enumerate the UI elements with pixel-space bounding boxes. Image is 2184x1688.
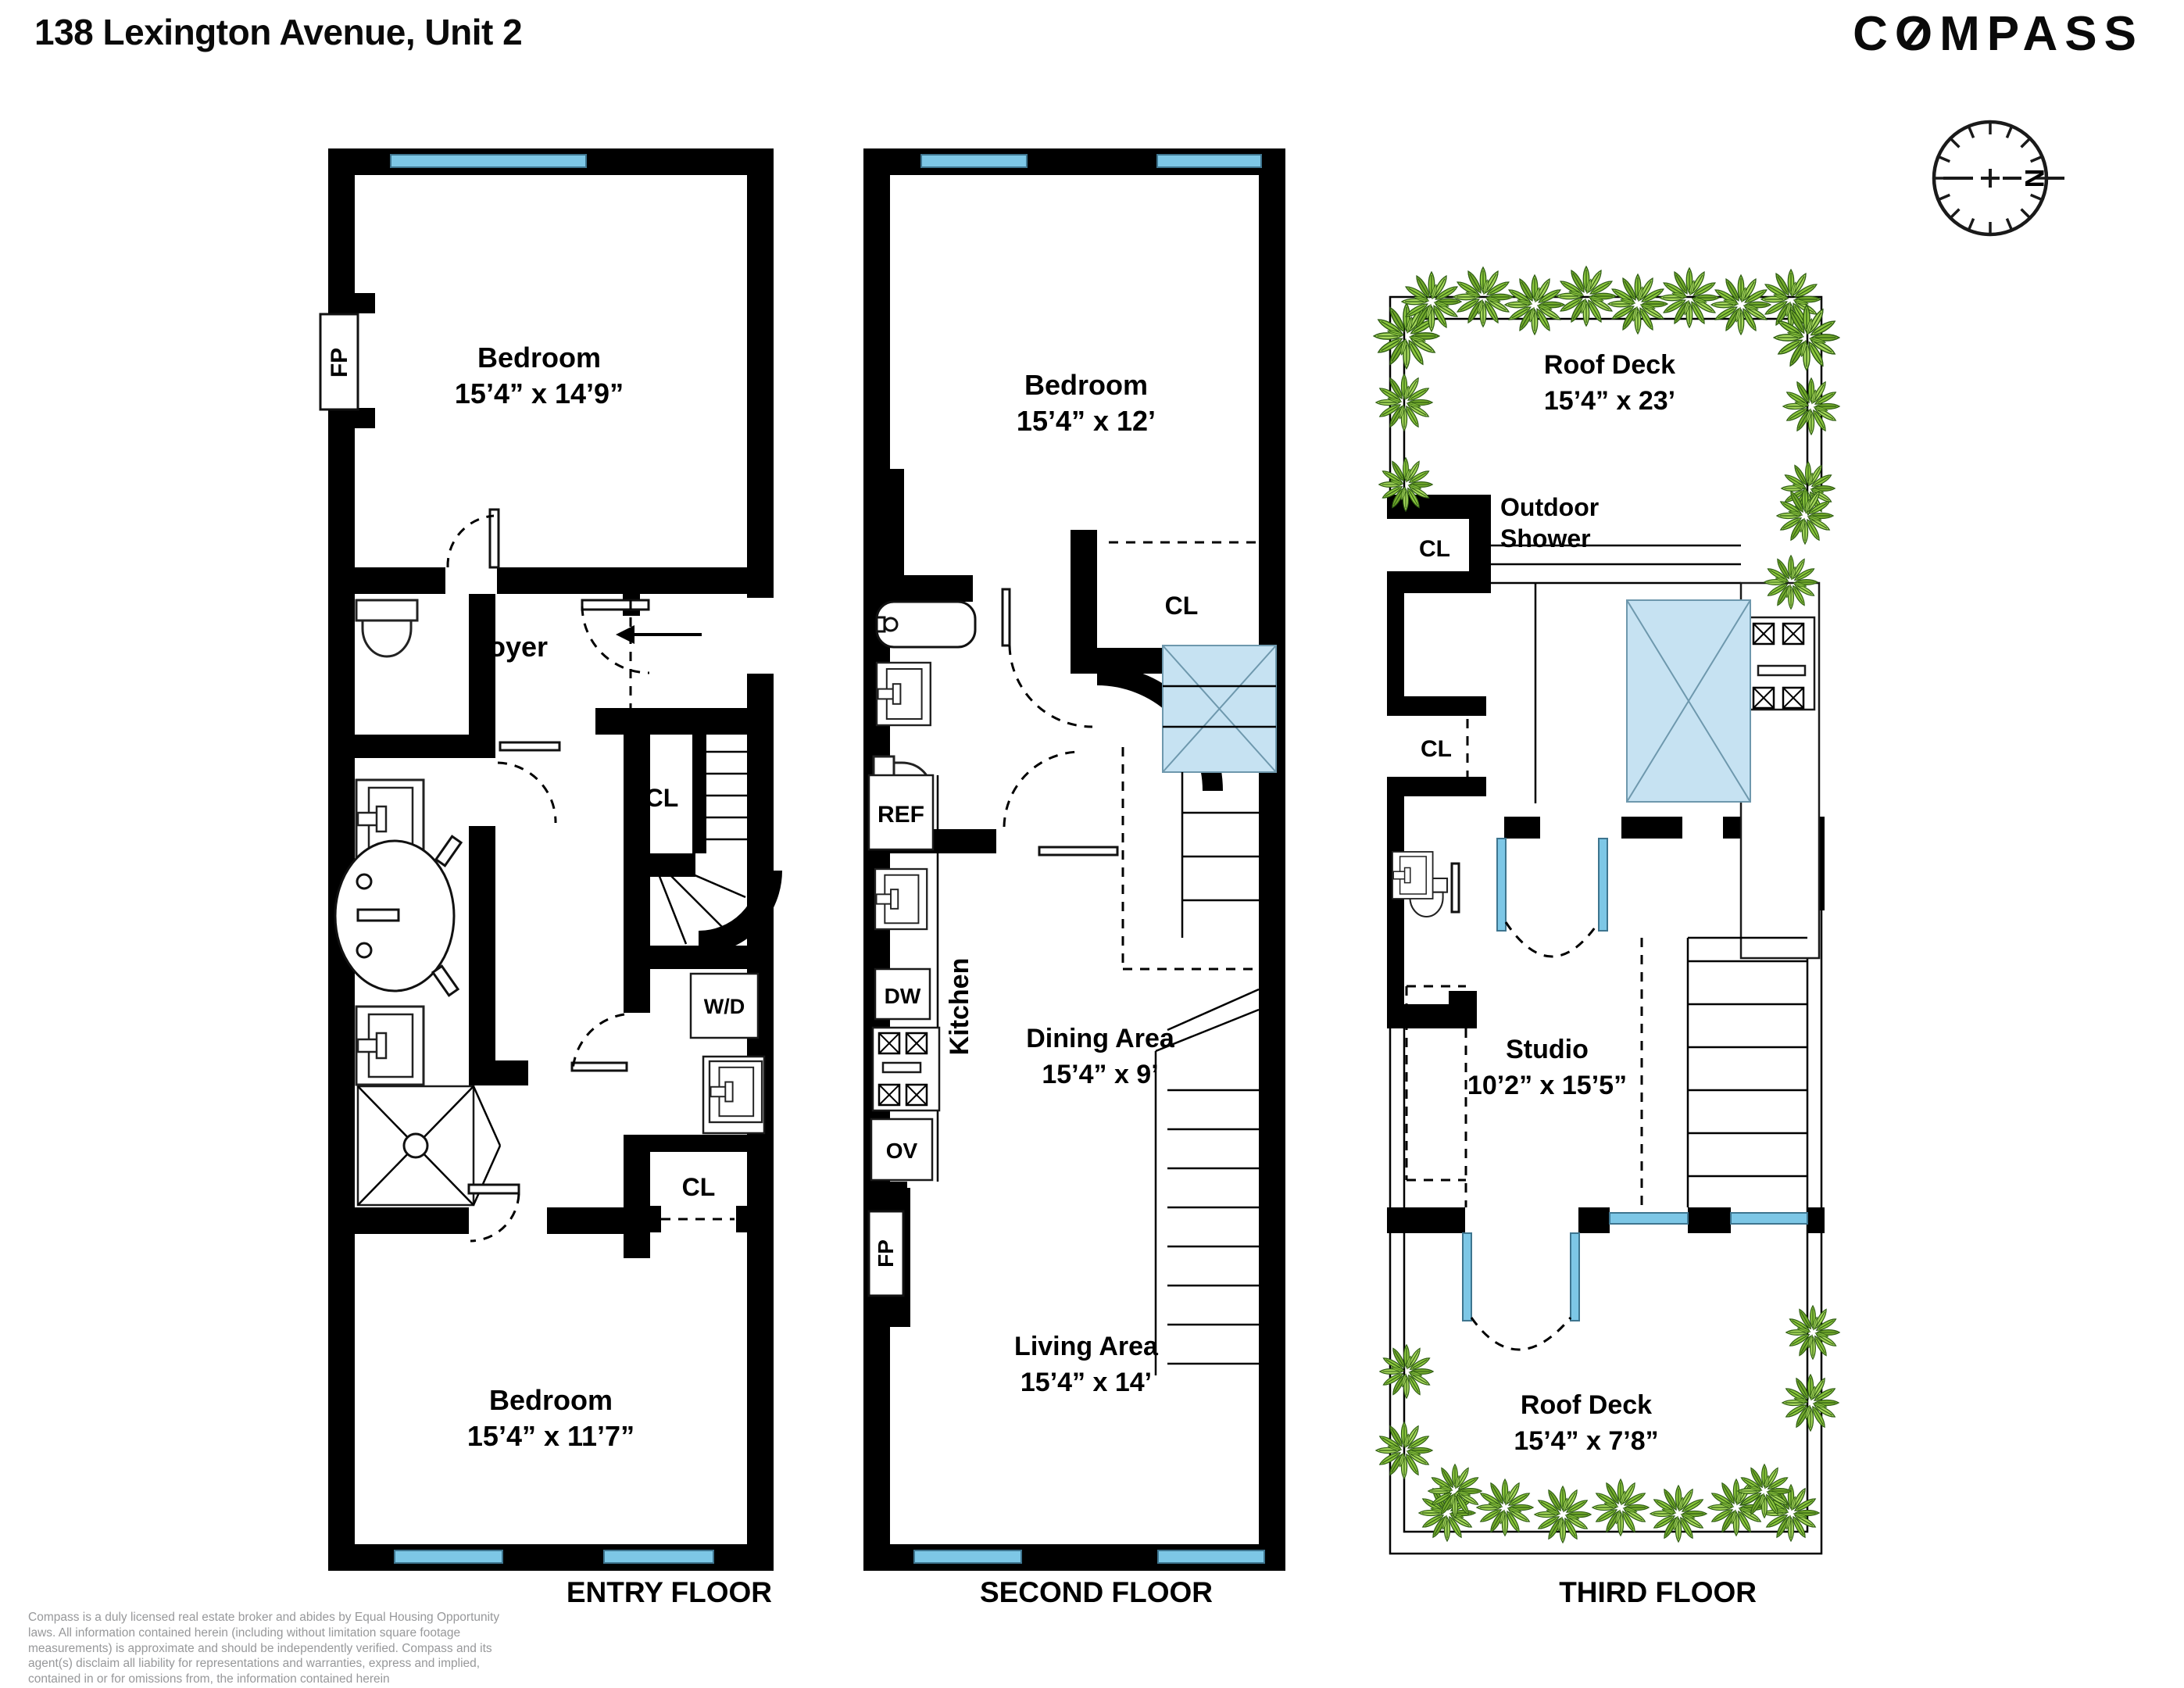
third-roofdeck-bottom-label: Roof Deck — [1521, 1390, 1652, 1420]
second-dining-label: Dining Area — [1026, 1024, 1175, 1053]
third-roofdeck-bottom-dims: 15’4” x 7’8” — [1514, 1426, 1658, 1456]
compass-north-label: N — [2019, 169, 2049, 188]
entry-toilet-icon — [356, 600, 417, 656]
second-living-label: Living Area — [1014, 1332, 1159, 1361]
third-skylight — [1627, 600, 1750, 802]
third-sink-icon — [1392, 852, 1433, 899]
third-outdoor-shower-line1: Outdoor — [1500, 493, 1599, 521]
second-living-dims: 15’4” x 14’ — [1021, 1368, 1152, 1397]
entry-cl-stairs-label: CL — [645, 784, 679, 812]
second-sink-bath-icon — [877, 663, 931, 725]
entry-sink-2-icon — [356, 1007, 424, 1085]
disclaimer-text: Compass is a duly licensed real estate b… — [28, 1610, 517, 1687]
second-kitchen-appliances: REF DW OV — [869, 775, 939, 1182]
second-skylight — [1163, 646, 1276, 772]
second-kitchen-label: Kitchen — [945, 958, 974, 1056]
entry-foyer-label: Foyer — [471, 631, 548, 663]
entry-fireplace: FP — [320, 314, 358, 409]
second-bedroom-dims: 15’4” x 12’ — [1017, 405, 1156, 437]
entry-floor-plan: FP — [320, 148, 774, 1608]
second-fireplace: FP — [869, 1211, 903, 1296]
second-cl-label: CL — [1165, 592, 1199, 620]
entry-sink-3-icon — [703, 1057, 764, 1133]
entry-arrow-icon — [616, 625, 702, 644]
entry-washer-dryer: W/D — [691, 974, 758, 1038]
third-cl-upper-label: CL — [1419, 536, 1450, 562]
third-studio-label: Studio — [1506, 1035, 1589, 1064]
third-counter-grill — [1741, 583, 1819, 958]
entry-tub-icon — [335, 836, 461, 996]
floorplan-canvas: FP — [0, 0, 2184, 1688]
second-floor-plan: REF DW OV FP Bedroom 15’4” x 12’ CL — [863, 148, 1285, 1608]
third-floor-title: THIRD FLOOR — [1559, 1576, 1757, 1608]
third-stairs — [1688, 938, 1807, 1207]
third-floor-plan: Roof Deck 15’4” x 23’ Outdoor Shower CL … — [1374, 266, 1839, 1608]
third-roofdeck-top-dims: 15’4” x 23’ — [1544, 386, 1675, 416]
second-ov-label: OV — [886, 1139, 918, 1163]
entry-cl-closet-label: CL — [682, 1173, 716, 1201]
entry-floor-title: ENTRY FLOOR — [567, 1576, 772, 1608]
second-dining-dims: 15’4” x 9’ — [1042, 1060, 1158, 1089]
second-ref-label: REF — [878, 802, 924, 828]
compass-rose-icon: N — [1934, 122, 2064, 234]
third-outdoor-shower-line2: Shower — [1500, 524, 1591, 553]
second-fp-label: FP — [874, 1239, 898, 1268]
third-cl-lower-label: CL — [1421, 736, 1452, 762]
entry-bedroom2-dims: 15’4” x 11’7” — [467, 1420, 634, 1452]
entry-bedroom2-label: Bedroom — [489, 1384, 613, 1416]
second-tub-icon — [877, 602, 975, 647]
entry-wd-label: W/D — [704, 995, 745, 1018]
second-floor-title: SECOND FLOOR — [980, 1576, 1213, 1608]
second-dw-label: DW — [885, 984, 921, 1008]
third-roofdeck-top-label: Roof Deck — [1544, 350, 1675, 380]
third-studio-dims: 10’2” x 15’5” — [1467, 1071, 1627, 1100]
entry-bedroom1-label: Bedroom — [477, 342, 601, 374]
second-bedroom-label: Bedroom — [1024, 369, 1148, 401]
entry-bedroom1-dims: 15’4” x 14’9” — [455, 377, 624, 409]
entry-fp-label: FP — [327, 348, 352, 377]
